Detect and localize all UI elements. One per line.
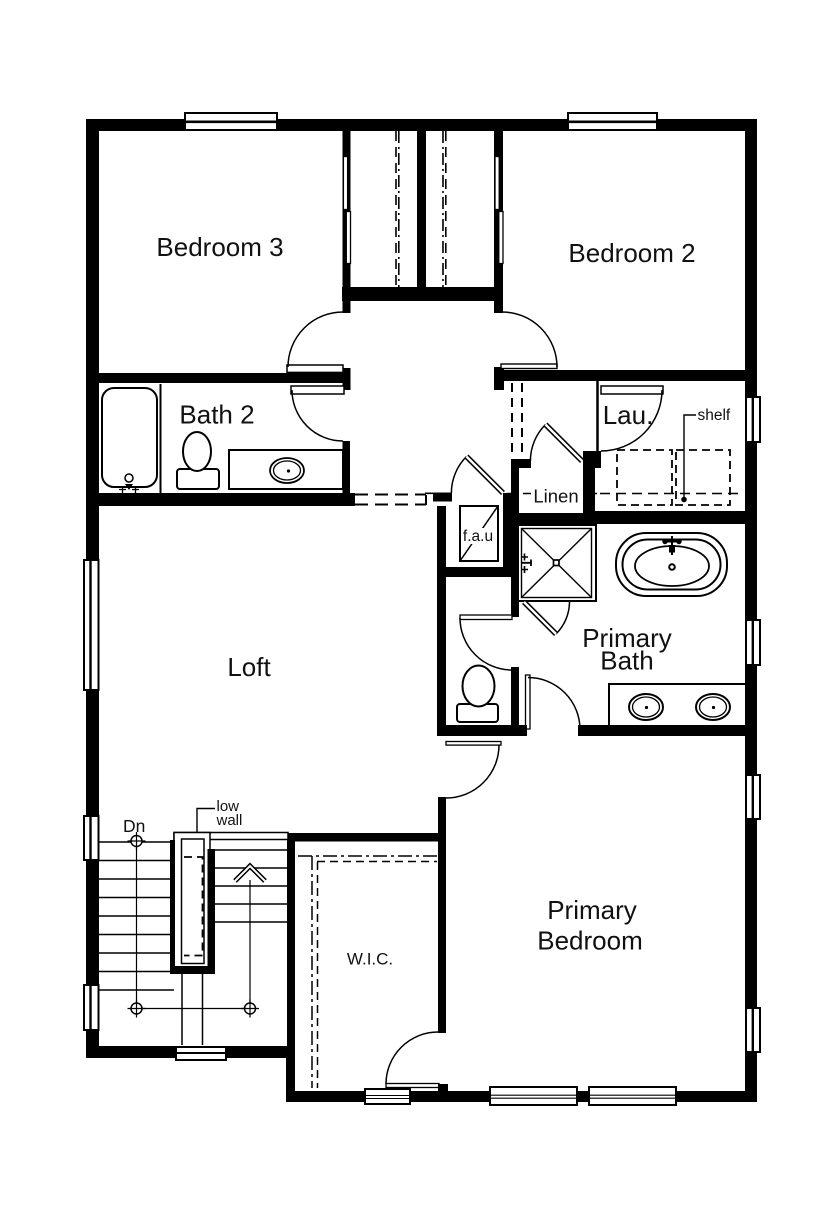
svg-text:W.I.C.: W.I.C. bbox=[347, 950, 393, 969]
svg-text:Linen: Linen bbox=[533, 486, 578, 507]
svg-text:Bath 2: Bath 2 bbox=[179, 400, 254, 430]
svg-text:Bedroom: Bedroom bbox=[537, 926, 643, 956]
svg-text:Loft: Loft bbox=[227, 652, 271, 682]
svg-text:shelf: shelf bbox=[698, 407, 731, 424]
svg-text:wall: wall bbox=[216, 812, 243, 829]
svg-text:Bedroom 2: Bedroom 2 bbox=[568, 238, 695, 268]
svg-text:Dn: Dn bbox=[123, 816, 145, 836]
svg-text:Lau.: Lau. bbox=[603, 400, 654, 430]
svg-text:Bath: Bath bbox=[600, 646, 654, 676]
svg-text:f.a.u: f.a.u bbox=[463, 528, 493, 545]
svg-text:Bedroom 3: Bedroom 3 bbox=[156, 232, 283, 262]
svg-text:Primary: Primary bbox=[547, 895, 637, 925]
